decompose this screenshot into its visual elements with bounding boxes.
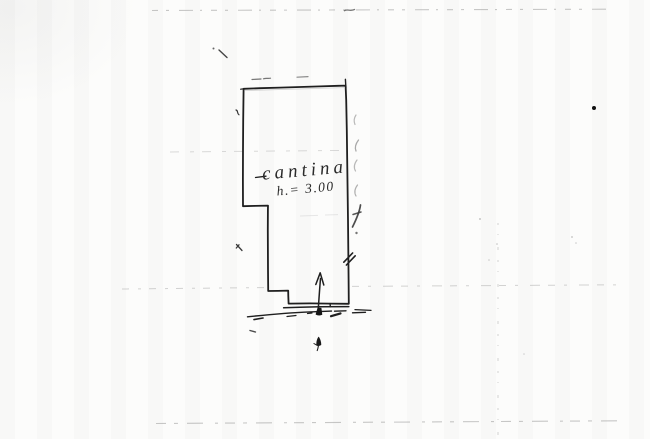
break-mark bbox=[344, 253, 355, 265]
ground-line bbox=[248, 310, 372, 320]
dimension-scribbles bbox=[353, 115, 362, 234]
entrance-arrow bbox=[316, 273, 324, 316]
room-annotation: cantina h.= 3.00 bbox=[256, 156, 348, 198]
floor-plan-drawing: cantina h.= 3.00 bbox=[0, 0, 650, 439]
scanned-document-page: cantina h.= 3.00 bbox=[0, 0, 650, 439]
ink-blot-mark bbox=[314, 337, 321, 351]
construction-lines bbox=[122, 9, 620, 437]
stray-marks bbox=[213, 48, 597, 355]
ink-dot bbox=[592, 106, 596, 110]
